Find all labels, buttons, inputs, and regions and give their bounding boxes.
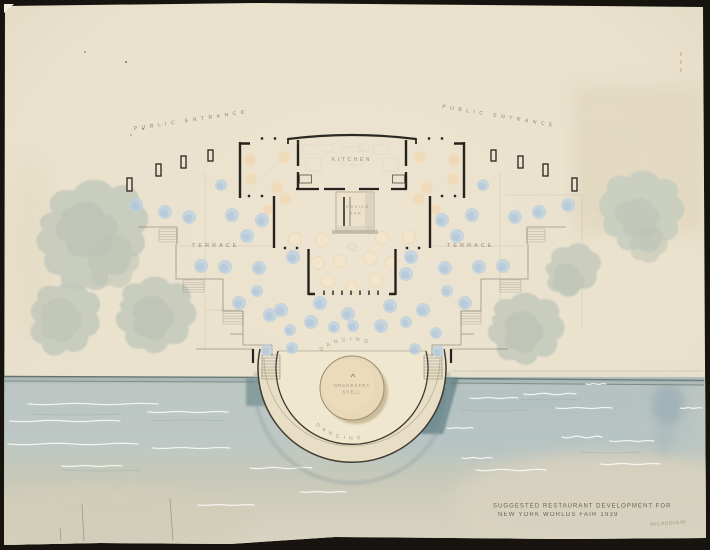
svg-text:ORCHESTRA: ORCHESTRA [334,383,371,388]
svg-text:TERRACE: TERRACE [192,243,239,249]
svg-text:BAR: BAR [350,211,362,216]
svg-text:SERVICE: SERVICE [342,204,369,209]
svg-text:SHELL: SHELL [343,390,362,395]
svg-text:KITCHEN: KITCHEN [332,157,372,163]
svg-text:NEW YORK WORLDS FAIR 1939: NEW YORK WORLDS FAIR 1939 [498,512,619,518]
svg-text:SUGGESTED RESTAURANT DEVELOP: SUGGESTED RESTAURANT DEVELOPMENT FOR [493,504,672,510]
svg-text:TERRACE: TERRACE [447,243,494,249]
